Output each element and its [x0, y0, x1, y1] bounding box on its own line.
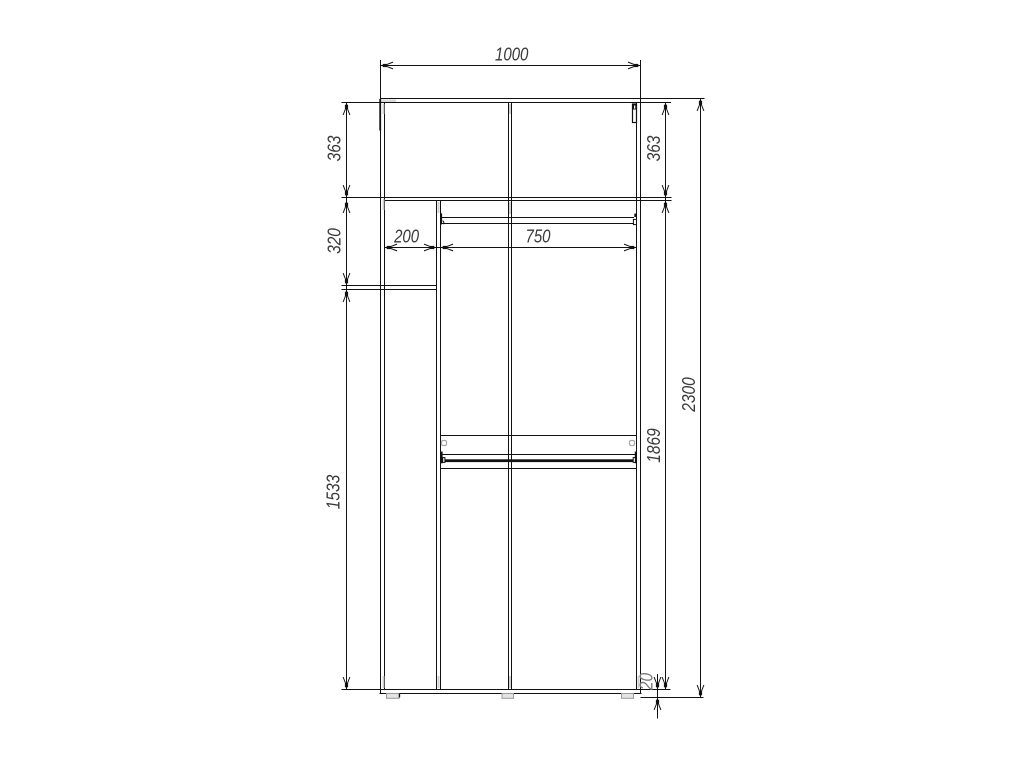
svg-text:363: 363 — [324, 136, 344, 162]
svg-text:200: 200 — [393, 226, 419, 246]
svg-text:1869: 1869 — [644, 428, 664, 462]
svg-text:363: 363 — [644, 136, 664, 162]
svg-text:1000: 1000 — [495, 45, 528, 65]
svg-text:750: 750 — [526, 227, 551, 247]
svg-text:1533: 1533 — [324, 475, 344, 509]
svg-text:320: 320 — [324, 228, 344, 254]
svg-text:2300: 2300 — [679, 377, 699, 412]
svg-text:20: 20 — [637, 673, 657, 691]
